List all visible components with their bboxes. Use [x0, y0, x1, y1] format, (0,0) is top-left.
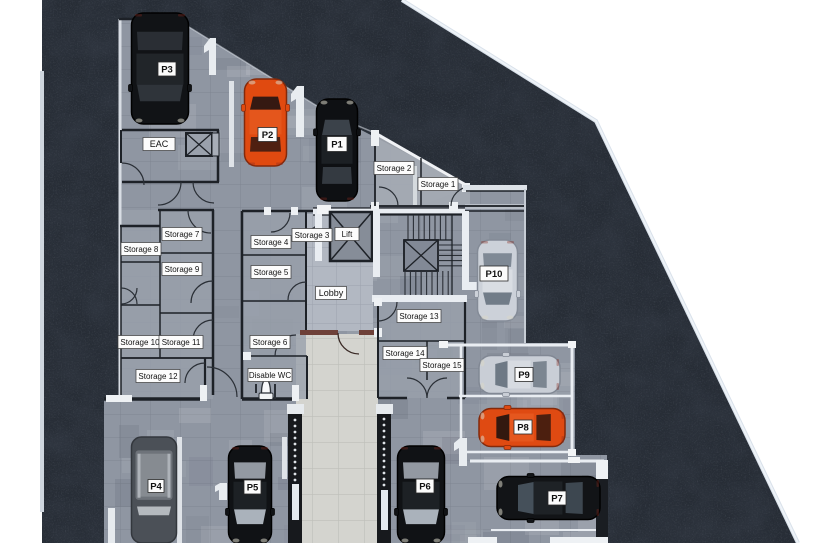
svg-text:P6: P6 [419, 481, 431, 492]
svg-text:Storage 14: Storage 14 [385, 349, 425, 358]
svg-text:P9: P9 [518, 370, 530, 381]
svg-text:P4: P4 [150, 481, 162, 492]
svg-text:Lift: Lift [342, 230, 353, 239]
svg-text:P8: P8 [517, 422, 529, 433]
svg-text:P7: P7 [551, 493, 563, 504]
svg-text:P1: P1 [331, 139, 343, 150]
svg-text:Disable WC: Disable WC [249, 371, 291, 380]
svg-text:P5: P5 [247, 482, 259, 493]
svg-text:Storage 8: Storage 8 [124, 245, 159, 254]
svg-text:Storage 5: Storage 5 [254, 268, 289, 277]
svg-text:Lobby: Lobby [319, 288, 344, 298]
svg-text:Storage 11: Storage 11 [162, 338, 201, 347]
svg-text:Storage 2: Storage 2 [377, 164, 412, 173]
svg-text:Storage 3: Storage 3 [295, 231, 330, 240]
svg-text:Storage 10: Storage 10 [120, 338, 160, 347]
svg-text:Storage 1: Storage 1 [421, 180, 456, 189]
svg-text:Storage 7: Storage 7 [165, 230, 200, 239]
svg-text:Storage 13: Storage 13 [399, 312, 439, 321]
svg-text:P10: P10 [486, 269, 503, 280]
svg-text:P3: P3 [161, 64, 173, 75]
svg-text:Storage 15: Storage 15 [422, 361, 462, 370]
svg-text:P2: P2 [262, 130, 274, 141]
svg-text:Storage 12: Storage 12 [138, 372, 178, 381]
svg-text:Storage 9: Storage 9 [165, 265, 200, 274]
svg-text:EAC: EAC [150, 139, 169, 149]
svg-text:Storage 6: Storage 6 [253, 338, 288, 347]
svg-text:Storage 4: Storage 4 [254, 238, 289, 247]
